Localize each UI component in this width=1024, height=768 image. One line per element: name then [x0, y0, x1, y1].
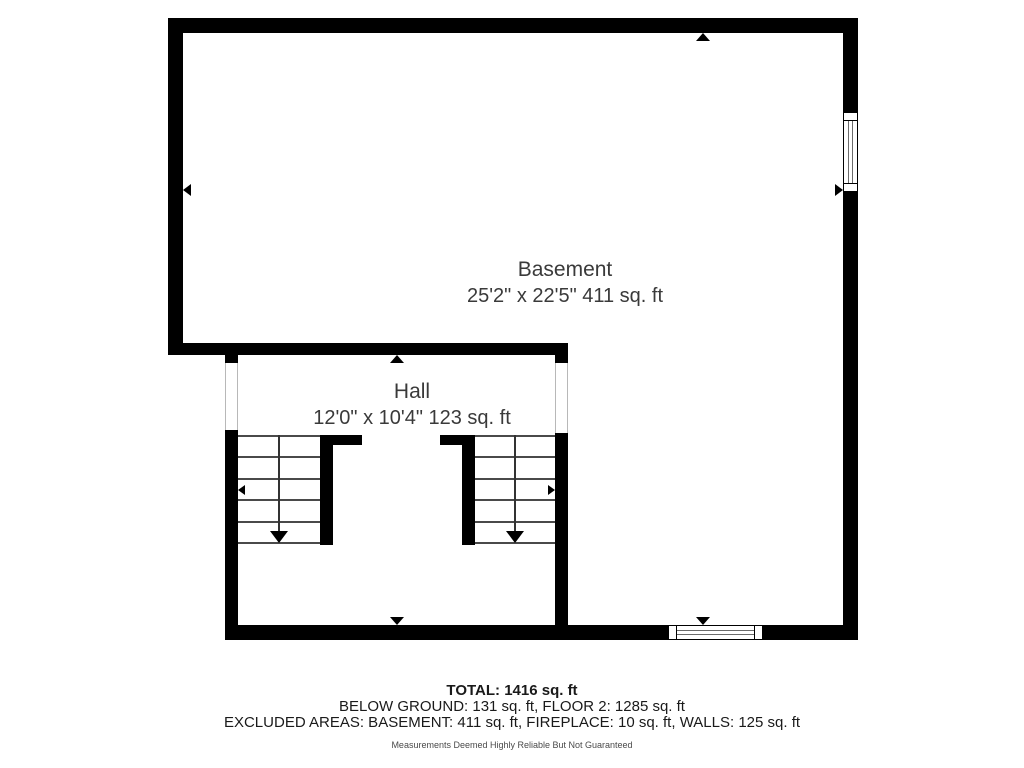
wall-hall-right	[555, 433, 568, 640]
window-right-wall-icon	[843, 112, 858, 192]
wall-door-stub-right	[440, 435, 462, 445]
wall-left-stair-inner	[320, 435, 333, 545]
wall-top-exterior	[168, 18, 858, 33]
hall-room-dimensions: 12'0" x 10'4" 123 sq. ft	[313, 405, 511, 432]
right-stair-down-arrow-icon	[506, 531, 524, 543]
excluded-areas-text: EXCLUDED AREAS: BASEMENT: 411 sq. ft, FI…	[0, 715, 1024, 731]
opening-hall-right	[555, 363, 568, 433]
hall-room-label: Hall 12'0" x 10'4" 123 sq. ft	[313, 378, 511, 432]
measurement-summary: TOTAL: 1416 sq. ft BELOW GROUND: 131 sq.…	[0, 683, 1024, 751]
bottom-wall-marker-arrow-icon	[390, 617, 404, 625]
window-bottom-wall-icon	[668, 625, 763, 640]
wall-bottom-exterior	[225, 625, 858, 640]
area-breakdown-text: BELOW GROUND: 131 sq. ft, FLOOR 2: 1285 …	[0, 699, 1024, 715]
staircase-left	[238, 435, 320, 544]
basement-room-label: Basement 25'2" x 22'5" 411 sq. ft	[467, 256, 663, 310]
hall-door-marker-arrow-icon	[390, 355, 404, 363]
staircase-right	[475, 435, 555, 544]
disclaimer-text: Measurements Deemed Highly Reliable But …	[0, 740, 1024, 751]
total-area-text: TOTAL: 1416 sq. ft	[0, 683, 1024, 699]
left-stair-down-arrow-icon	[270, 531, 288, 543]
wall-hall-right-upper-block	[555, 343, 568, 363]
bottom-window-marker-arrow-icon	[696, 617, 710, 625]
left-wall-marker-arrow-icon	[183, 184, 191, 196]
opening-hall-left	[225, 363, 238, 430]
basement-room-dimensions: 25'2" x 22'5" 411 sq. ft	[467, 283, 663, 310]
basement-room-name: Basement	[467, 256, 663, 283]
wall-hall-left	[225, 430, 238, 640]
floorplan-canvas: Basement 25'2" x 22'5" 411 sq. ft Hall 1…	[0, 0, 1024, 768]
wall-hall-left-upper-block	[225, 343, 238, 363]
right-window-marker-arrow-icon	[835, 184, 843, 196]
wall-door-stub-left	[333, 435, 362, 445]
right-stair-wall-marker-arrow-icon	[548, 485, 555, 495]
left-stair-wall-marker-arrow-icon	[238, 485, 245, 495]
wall-right-stair-inner	[462, 435, 475, 545]
top-wall-marker-arrow-icon	[696, 33, 710, 41]
hall-room-name: Hall	[313, 378, 511, 405]
wall-left-exterior	[168, 18, 183, 355]
